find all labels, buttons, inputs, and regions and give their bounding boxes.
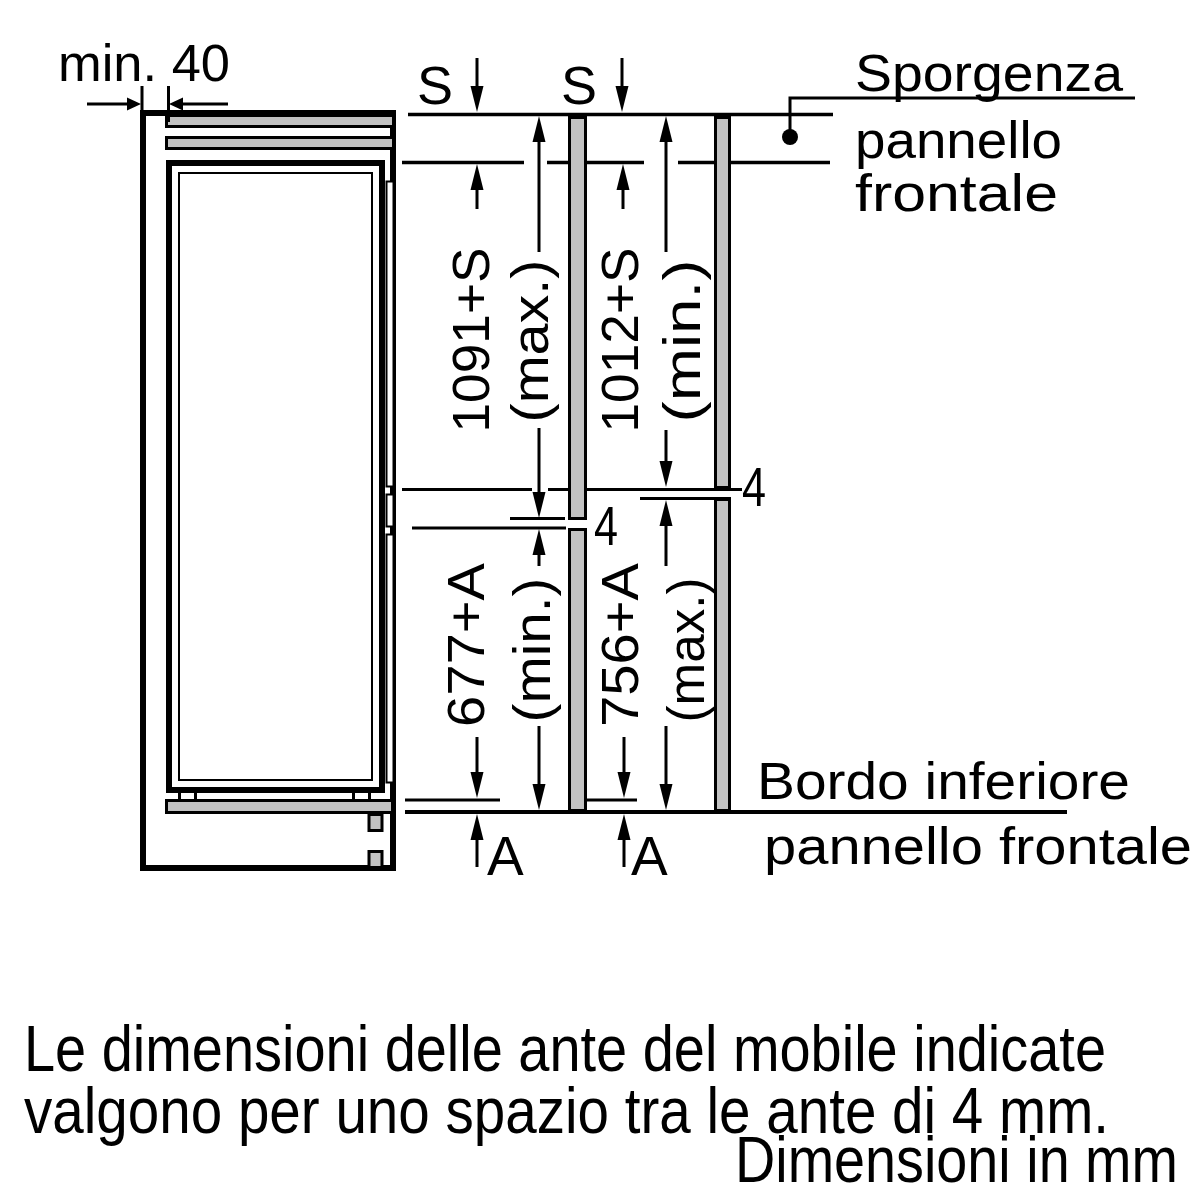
min40-label: min. 40 (58, 34, 230, 92)
s-label-right: S (561, 55, 597, 115)
dim-lower-right-qualifier: (max.) (657, 578, 715, 723)
bordo-label-line2: pannello frontale (764, 817, 1192, 875)
front-panel-upper-min (716, 118, 730, 488)
appliance-door-outer (169, 163, 382, 790)
sporgenza-label-line3: frontale (855, 164, 1058, 222)
door-hinge-strip-lower (387, 535, 394, 783)
front-panel-case-min (716, 118, 730, 811)
installation-diagram-page: min. 40 S S Sporgenza pannello frontale … (0, 0, 1200, 1200)
door-hinge-strip-upper (387, 182, 394, 487)
cabinet-section (143, 113, 394, 868)
sporgenza-label-line2: pannello (855, 111, 1062, 169)
front-panel-upper-max (570, 118, 586, 519)
appliance-base-rail (167, 801, 393, 813)
dim-upper-left-qualifier: (max.) (501, 260, 559, 423)
footer-units-note: Dimensioni in mm (735, 1124, 1178, 1196)
base-block-lower (369, 852, 382, 868)
front-panel-lower-max (716, 500, 730, 811)
dim-lower-left-value: 677+A (437, 563, 495, 727)
dim-upper-right-qualifier: (min.) (653, 260, 711, 423)
base-block-upper (369, 815, 382, 831)
dim-upper-right-value: 1012+S (591, 248, 649, 433)
front-panel-case-max (570, 118, 586, 811)
dim-upper-left-value: 1091+S (442, 248, 500, 433)
sporgenza-label-line1: Sporgenza (855, 44, 1123, 102)
gap-label-right: 4 (742, 456, 766, 518)
a-label-left: A (487, 825, 524, 887)
bordo-label-line1: Bordo inferiore (757, 752, 1130, 810)
appliance-vent-panel (167, 138, 394, 149)
leader-dot (782, 129, 798, 145)
gap-label-left: 4 (594, 495, 618, 557)
appliance-top-panel (167, 116, 394, 127)
door-hinge-strip-middle (387, 495, 394, 527)
s-label-left: S (417, 55, 453, 115)
dim-lower-left-qualifier: (min.) (503, 578, 561, 723)
front-panel-lower-min (570, 530, 586, 811)
dim-lower-right-value: 756+A (591, 563, 649, 727)
a-label-right: A (631, 825, 668, 887)
dimension-drawing: min. 40 S S Sporgenza pannello frontale … (0, 0, 1200, 1200)
